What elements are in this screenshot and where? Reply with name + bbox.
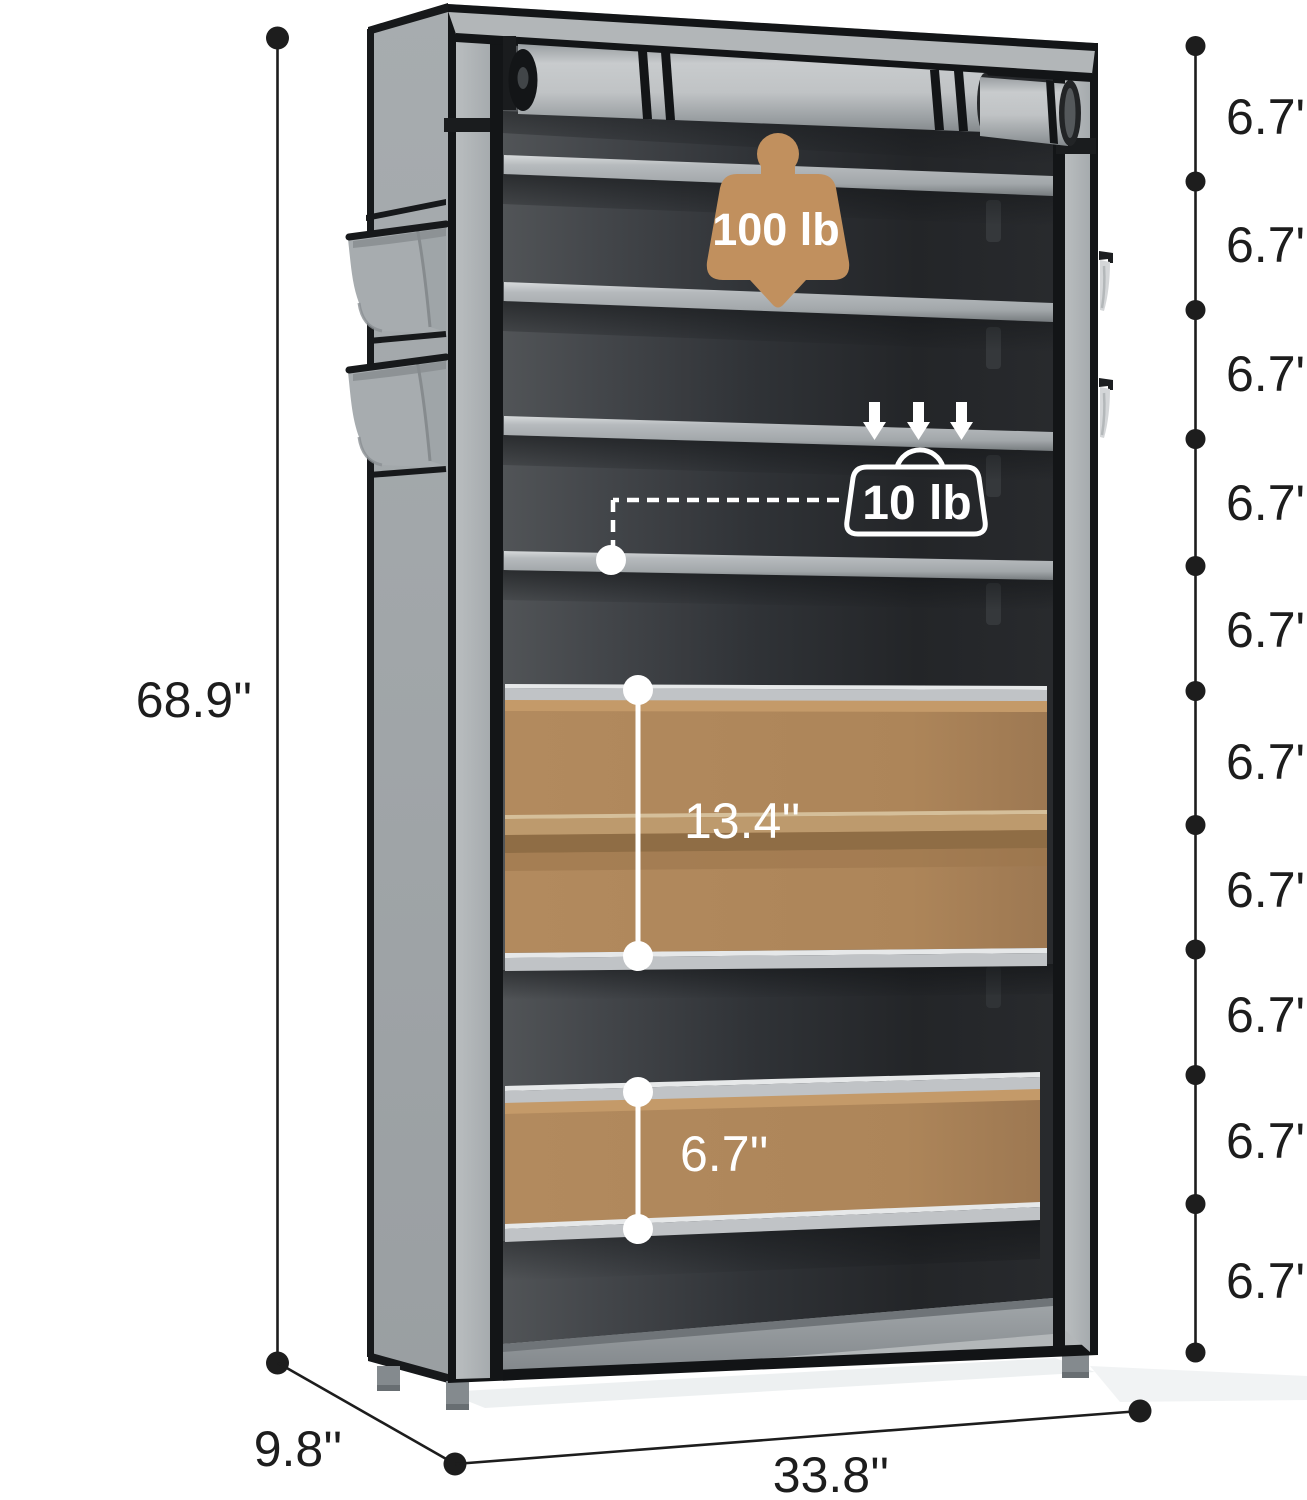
svg-text:6.7'': 6.7'' bbox=[1226, 1253, 1307, 1309]
svg-text:6.7'': 6.7'' bbox=[1226, 475, 1307, 531]
svg-text:10 lb: 10 lb bbox=[862, 477, 971, 530]
svg-text:6.7'': 6.7'' bbox=[1226, 89, 1307, 145]
svg-text:6.7'': 6.7'' bbox=[1226, 734, 1307, 790]
svg-text:13.4'': 13.4'' bbox=[684, 793, 800, 849]
svg-text:6.7'': 6.7'' bbox=[680, 1126, 769, 1182]
svg-text:6.7'': 6.7'' bbox=[1226, 987, 1307, 1043]
svg-text:6.7'': 6.7'' bbox=[1226, 602, 1307, 658]
svg-text:100 lb: 100 lb bbox=[712, 204, 840, 255]
svg-text:9.8'': 9.8'' bbox=[254, 1421, 343, 1477]
svg-text:6.7'': 6.7'' bbox=[1226, 1113, 1307, 1169]
svg-text:6.7'': 6.7'' bbox=[1226, 346, 1307, 402]
svg-text:6.7'': 6.7'' bbox=[1226, 862, 1307, 918]
svg-text:68.9'': 68.9'' bbox=[136, 672, 252, 728]
svg-text:6.7'': 6.7'' bbox=[1226, 217, 1307, 273]
svg-text:33.8'': 33.8'' bbox=[773, 1447, 889, 1500]
